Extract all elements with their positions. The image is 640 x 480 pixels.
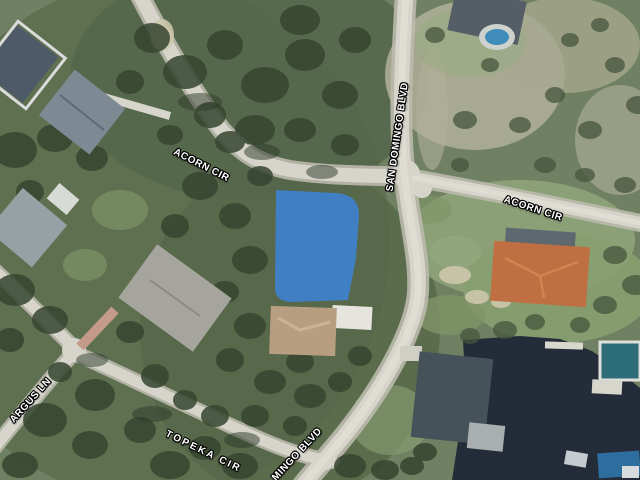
- house-roof-tan: [269, 306, 337, 356]
- white-driveway: [331, 305, 372, 330]
- seawall: [545, 341, 583, 349]
- dock: [592, 379, 623, 395]
- house-roof-terracotta: [490, 241, 590, 308]
- dock: [467, 422, 506, 452]
- pool: [485, 29, 509, 45]
- map-imagery: [0, 0, 640, 480]
- parcel-highlight: [275, 190, 359, 302]
- boat: [622, 466, 639, 478]
- pool-enclosure: [600, 342, 640, 380]
- aerial-map[interactable]: SAN DOMINGO BLVD ACORN CIR ACORN CIR TOP…: [0, 0, 640, 480]
